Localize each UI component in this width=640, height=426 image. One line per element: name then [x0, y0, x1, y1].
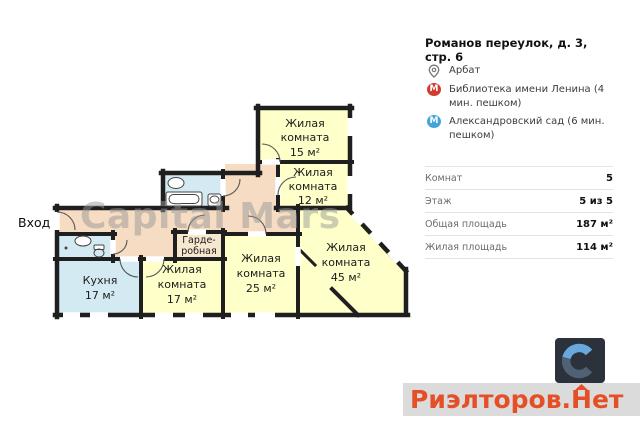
- metro-station-name: Александровский сад (6 мин. пешком): [449, 115, 611, 142]
- svg-text:Жилая: Жилая: [241, 252, 280, 265]
- room-label-wardrobe: Гарде- робная: [181, 235, 216, 257]
- details-panel: Романов переулок, д. 3, стр. 6 Арбат М Б…: [425, 36, 613, 65]
- spec-value: 187 м²: [576, 219, 613, 230]
- svg-text:25 м²: 25 м²: [246, 282, 276, 295]
- district-label: Арбат: [449, 64, 611, 78]
- spec-value: 5 из 5: [579, 196, 613, 207]
- spec-label: Общая площадь: [425, 219, 507, 230]
- spec-value: 5: [606, 173, 613, 184]
- brand-name: Риэлторов.Нет: [410, 387, 623, 412]
- spec-row-living-area: Жилая площадь 114 м²: [425, 235, 613, 259]
- spec-row-rooms: Комнат 5: [425, 166, 613, 189]
- metro-row: М Библиотека имени Ленина (4 мин. пешком…: [427, 83, 611, 110]
- kitchen-fill: [57, 259, 141, 315]
- svg-text:комната: комната: [237, 267, 286, 280]
- page-title: Романов переулок, д. 3, стр. 6: [425, 36, 613, 65]
- svg-text:45 м²: 45 м²: [331, 271, 361, 284]
- watermark: Capital Mars: [80, 196, 341, 237]
- sink-icon: [75, 236, 91, 246]
- sink-icon: [168, 178, 184, 189]
- metro-row: М Александровский сад (6 мин. пешком): [427, 115, 611, 142]
- svg-text:комната: комната: [158, 278, 207, 291]
- svg-text:Жилая: Жилая: [285, 117, 324, 130]
- svg-text:17 м²: 17 м²: [167, 293, 197, 306]
- svg-text:17 м²: 17 м²: [85, 289, 115, 302]
- spec-value: 114 м²: [576, 242, 613, 253]
- svg-text:Жилая: Жилая: [293, 166, 332, 179]
- svg-text:15 м²: 15 м²: [290, 146, 320, 159]
- spec-row-total-area: Общая площадь 187 м²: [425, 212, 613, 235]
- district-row: Арбат: [427, 64, 611, 78]
- spec-label: Комнат: [425, 173, 462, 184]
- metro-red-line-icon: М: [427, 83, 441, 96]
- svg-text:Жилая: Жилая: [326, 241, 365, 254]
- svg-text:комната: комната: [289, 180, 338, 193]
- map-pin-icon: [427, 64, 441, 78]
- spec-label: Жилая площадь: [425, 242, 507, 253]
- listing-page: Жилая комната 15 м² Жилая комната 12 м² …: [0, 0, 640, 426]
- location-info: Арбат М Библиотека имени Ленина (4 мин. …: [427, 64, 611, 147]
- svg-text:комната: комната: [322, 256, 371, 269]
- agency-logo: [555, 338, 605, 383]
- metro-station-name: Библиотека имени Ленина (4 мин. пешком): [449, 83, 611, 110]
- entrance-label: Вход: [18, 215, 50, 230]
- spec-label: Этаж: [425, 196, 452, 207]
- logo-c-icon: [555, 338, 605, 383]
- svg-text:Жилая: Жилая: [162, 263, 201, 276]
- specs-table: Комнат 5 Этаж 5 из 5 Общая площадь 187 м…: [425, 166, 613, 259]
- metro-blue-line-icon: М: [427, 115, 441, 128]
- spec-row-floor: Этаж 5 из 5: [425, 189, 613, 212]
- svg-text:комната: комната: [281, 131, 330, 144]
- svg-text:робная: робная: [181, 246, 216, 257]
- svg-text:Кухня: Кухня: [83, 274, 118, 287]
- brand-banner: Риэлторов.Нет: [403, 383, 640, 416]
